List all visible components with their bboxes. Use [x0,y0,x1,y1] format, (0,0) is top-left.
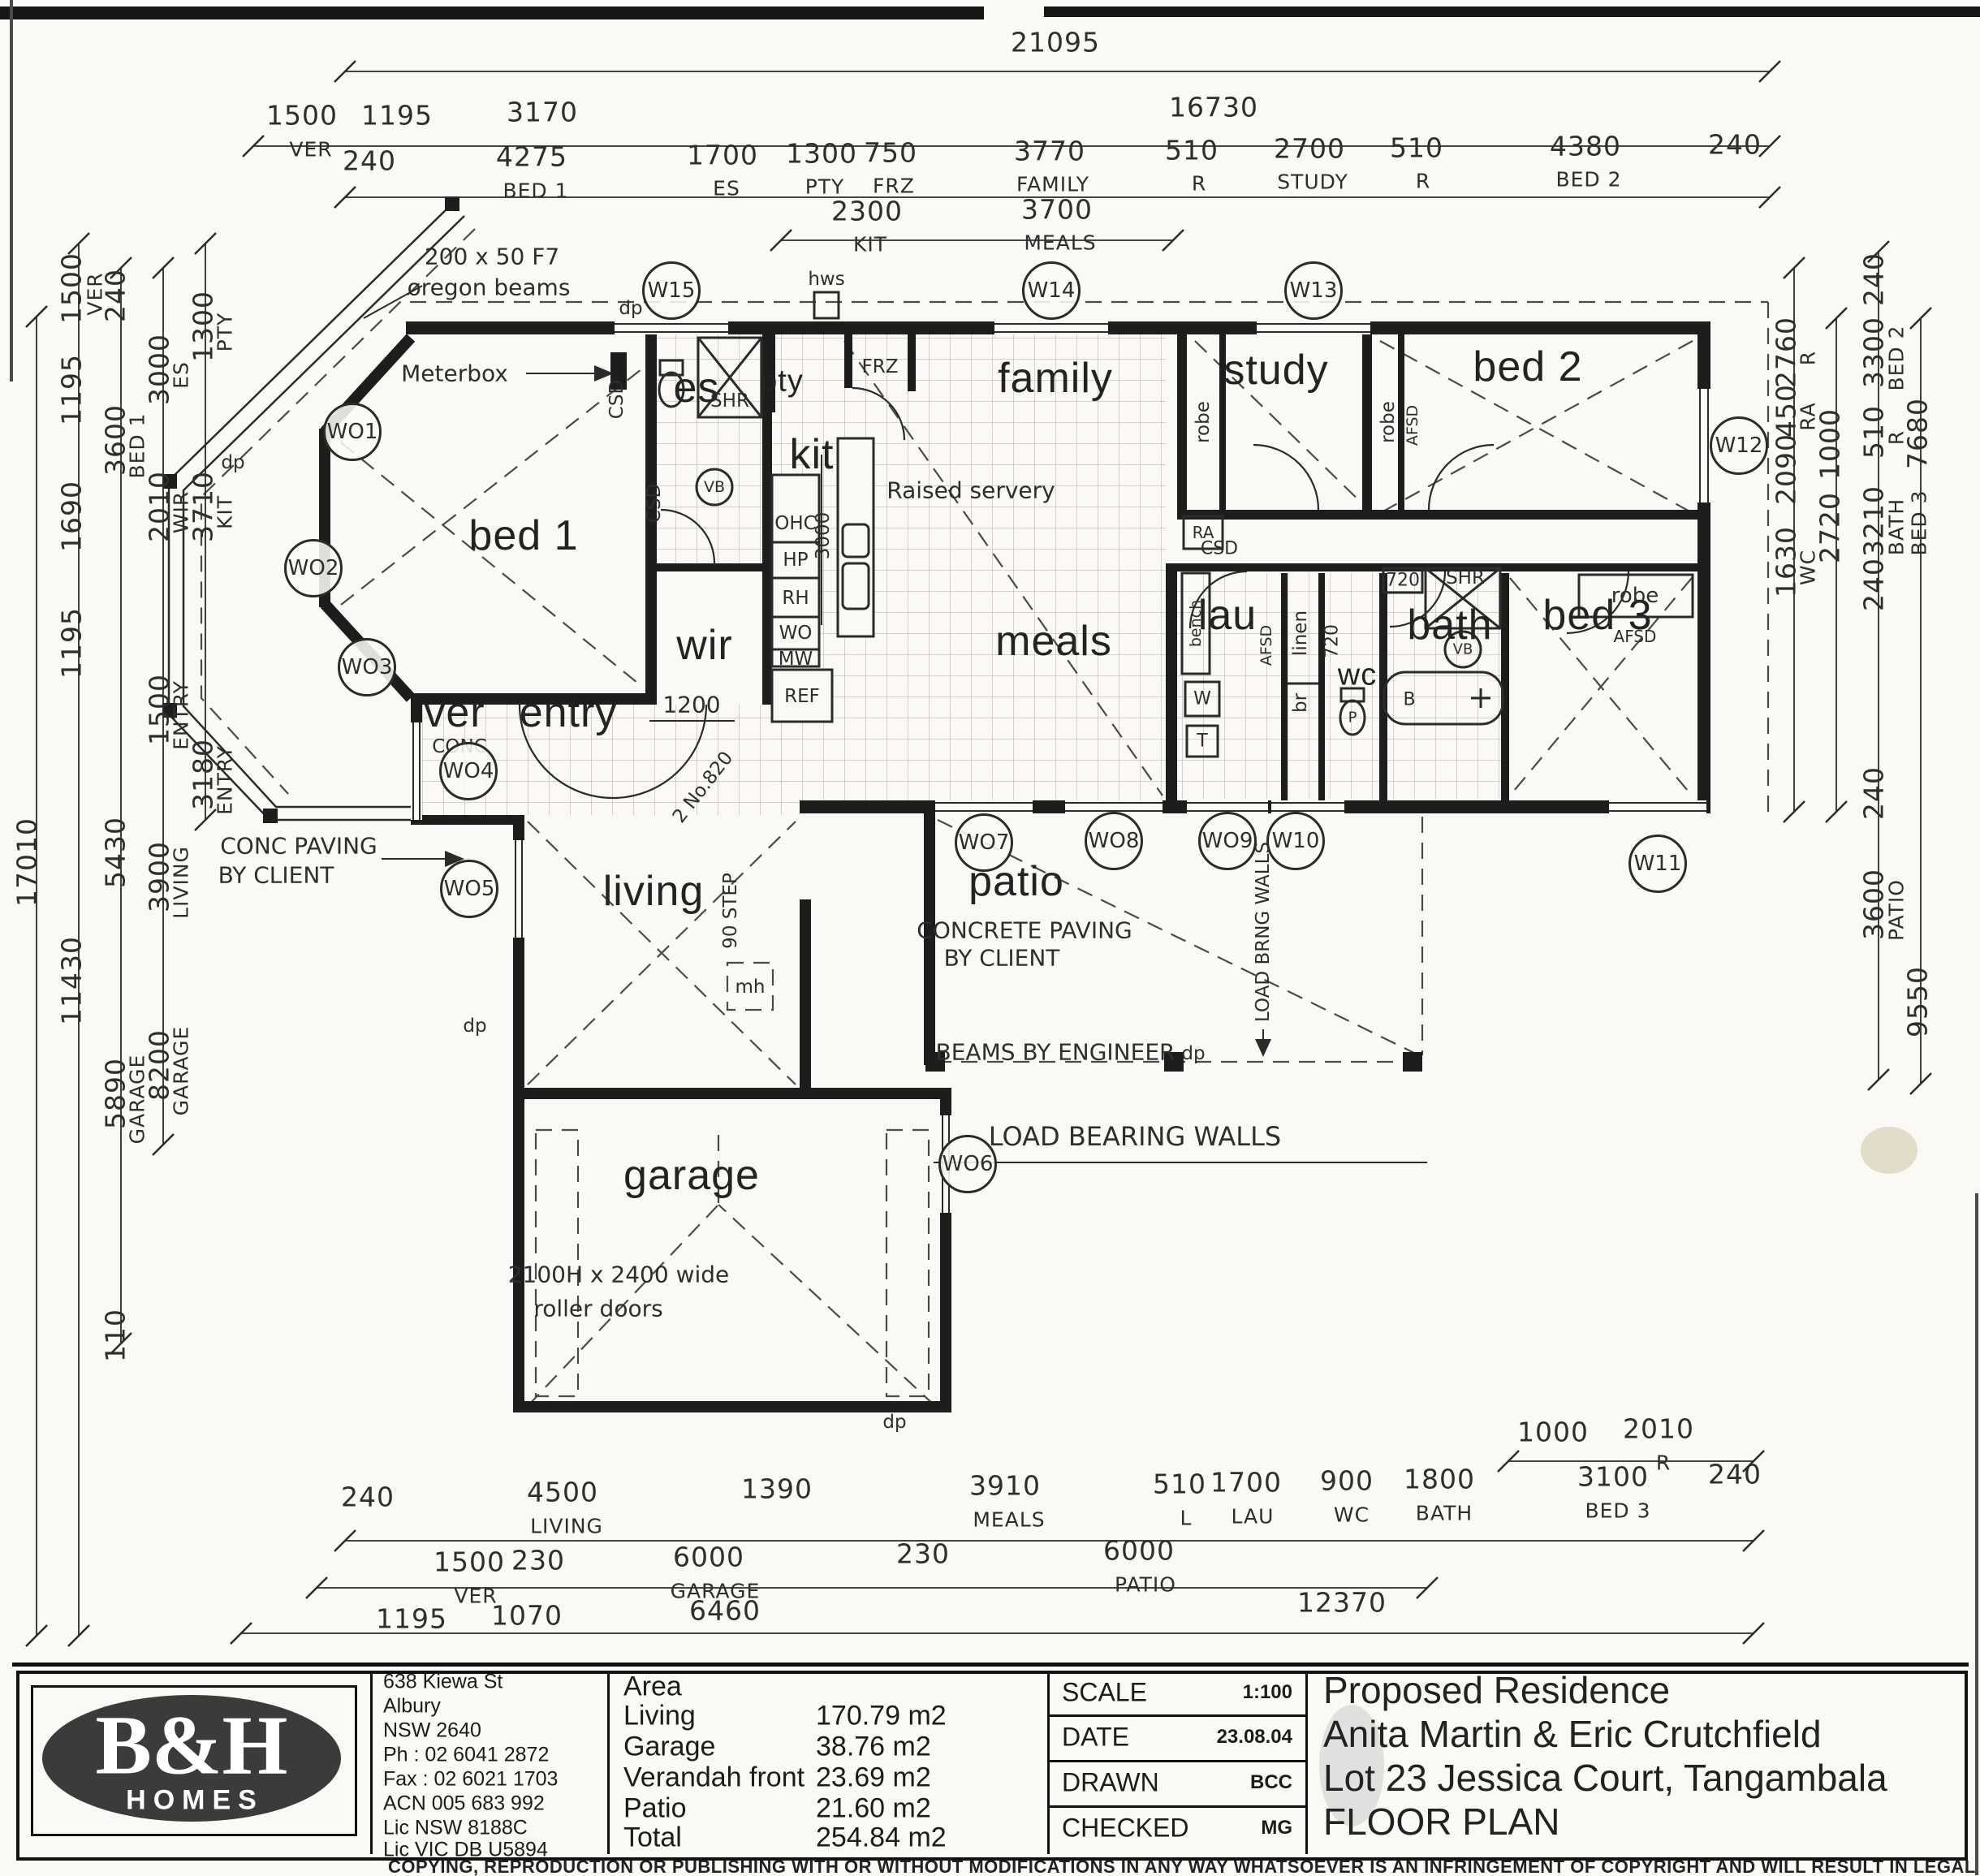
dim-label: FRZ [873,175,915,198]
label-afsd-bed3: AFSD [1614,627,1657,646]
window-marker-w13: W13 [1284,261,1343,320]
address-line: 638 Kiewa St [383,1671,503,1694]
note-step: 90 STEP [720,873,741,949]
note-servery: Raised servery [886,477,1055,504]
area-label: Total [623,1822,682,1854]
note-dp: dp [619,298,642,319]
floor-plan-page: 21095 1500 VER 1195 3170 16730 240 4275 … [0,0,1980,1876]
dim-label: PATIO [1885,879,1909,941]
label-vb: VB [704,478,725,496]
dim: 230 [511,1545,565,1576]
label-shr-bath: SHR [1446,567,1485,589]
label-robe-bed2: robe [1378,401,1399,443]
label-csd: CSD [1201,539,1238,559]
dim: 2720 [1814,492,1846,563]
area-label: Verandah front [623,1762,805,1794]
dim-entry-1200: 1200 [662,692,720,718]
note-conc-paving-2: BY CLIENT [218,862,334,889]
dim: 240 [1708,129,1762,161]
dim-bath-720: 720 [1386,571,1420,591]
frame-bottom-line [12,1663,1969,1667]
label-hp: HP [783,550,808,571]
scan-edge-right [1975,1193,1978,1875]
note-beams-type: oregon beams [408,274,571,301]
dim: 510 [1165,135,1219,166]
title-divider-4 [1305,1671,1308,1854]
dim: 2090 [1771,433,1802,505]
note-beams-size: 200 x 50 F7 [425,244,559,270]
dim-label: MEALS [973,1508,1045,1532]
note-concrete-paving-1: CONCRETE PAVING [917,917,1132,944]
address-line: Albury [383,1695,441,1719]
dim: 240 [1708,1459,1762,1490]
label-robe-bed3: robe [1611,584,1659,608]
dim: 750 [864,137,917,169]
dim-label: KIT [214,495,237,529]
area-heading: Area [623,1671,682,1703]
label-trough: T [1197,731,1207,752]
dim-top-total: 21095 [1011,27,1100,58]
dim-label: LAU [1232,1505,1275,1529]
room-wc: wc [1338,658,1377,693]
room-bath: bath [1407,601,1492,649]
title-divider-3 [1047,1671,1050,1854]
meta-row-line [1047,1714,1305,1717]
area-value: 38.76 m2 [816,1732,931,1763]
dim: 12370 [1297,1587,1387,1619]
room-ver: ver [424,688,485,737]
dim-wc-720: 720 [1322,624,1343,658]
dim: 1800 [1404,1464,1475,1495]
dim-label: BED 3 [1585,1499,1650,1523]
dim: 7680 [1902,398,1934,469]
dim-label: BED 2 [1885,325,1909,390]
note-load-brng: LOAD BRNG WALLS [1253,842,1274,1022]
area-value: 254.84 m2 [816,1822,947,1854]
dim: 510 [1390,132,1443,164]
dim: 11430 [56,936,88,1025]
dim-label: BED 2 [1555,168,1621,192]
scan-band-left [0,6,984,19]
dim: 240 [1858,766,1890,820]
drawn-label: DRAWN [1062,1768,1159,1798]
label-bath-b: B [1403,690,1415,710]
title-divider-1 [370,1671,373,1854]
dim: 17010 [11,817,43,907]
room-lau: lau [1198,591,1257,640]
dim-label: BATH [1885,498,1909,555]
note-dp: dp [463,1016,486,1037]
project-title: Proposed Residence [1323,1668,1670,1712]
dim-label: BED 1 [126,412,149,478]
dim: 2300 [831,196,903,227]
dim: 4380 [1550,131,1621,162]
dim: 3770 [1014,136,1085,167]
label-ohc: OHC [774,513,816,534]
logo-subtext: HOMES [126,1785,264,1817]
label-frz: FRZ [862,356,899,377]
dim: 3700 [1021,194,1093,226]
dim-label: ENTRY [214,745,237,815]
dim: 240 [343,145,396,177]
window-marker-wo9: WO9 [1198,812,1257,870]
dim-label: FAMILY [1016,173,1089,196]
dim: 1700 [1210,1467,1282,1499]
phone-line: Ph : 02 6041 2872 [383,1744,549,1767]
dim: 1195 [376,1603,447,1635]
dim: 110 [100,1309,132,1362]
area-value: 170.79 m2 [816,1701,947,1732]
dim: 240 [341,1481,395,1513]
room-family: family [998,354,1113,403]
dim: 3100 [1577,1461,1649,1493]
dim: 240 [1858,252,1890,306]
label-pan: P [1348,709,1357,727]
room-living: living [603,867,705,916]
note-hws: hws [808,269,844,290]
project-address: Lot 23 Jessica Court, Tangambala [1323,1756,1887,1800]
label-linen: linen [1290,610,1311,656]
hws-box [814,292,839,318]
label-vb-bath: VB [1453,641,1473,658]
window-marker-wo1: WO1 [323,403,382,461]
room-pty: pty [760,364,804,399]
area-label: Garage [623,1732,715,1763]
dim: 1000 [1814,408,1846,480]
dim-label: BATH [1416,1502,1473,1525]
label-rh: RH [782,588,809,609]
copyright-notice: COPYING, REPRODUCTION OR PUBLISHING WITH… [388,1857,1980,1876]
dim: 6460 [689,1595,761,1627]
label-washer: W [1193,689,1211,709]
area-label: Living [623,1701,696,1732]
scan-edge-left [10,0,13,382]
dim-label: LIVING [530,1515,603,1538]
window-marker-wo6: WO6 [938,1135,997,1193]
dim: 1300 [786,138,857,170]
note-beams-engineer: BEAMS BY ENGINEER [936,1039,1175,1066]
drawn-value: BCC [1250,1771,1292,1794]
room-garage: garage [623,1151,760,1200]
dim-label: PATIO [1115,1573,1176,1597]
note-concrete-paving-2: BY CLIENT [944,945,1060,972]
checked-label: CHECKED [1062,1813,1188,1844]
room-wir: wir [676,621,732,670]
dim-label: KIT [853,233,887,257]
meta-row-line [1047,1760,1305,1762]
dim: 510 [1153,1468,1206,1500]
room-meals: meals [995,617,1112,666]
label-afsd-bed2: AFSD [1404,405,1421,446]
dim: 1195 [56,607,88,679]
area-value: 21.60 m2 [816,1793,931,1825]
dim-label: R [1797,351,1820,365]
scale-label: SCALE [1062,1678,1147,1708]
dim: 240 [1858,558,1890,611]
dim-label: R [1416,170,1430,193]
scale-value: 1:100 [1243,1681,1292,1704]
note-conc-paving-1: CONC PAVING [220,833,377,860]
dim: 1500 [434,1546,505,1578]
room-entry: entry [520,688,618,737]
label-afsd-lau: AFSD [1257,625,1275,666]
dim: 1195 [361,100,433,132]
label-shr: SHR [710,390,749,412]
dim: 6000 [1103,1535,1175,1567]
date-value: 23.08.04 [1217,1726,1292,1749]
dim-label: BED 3 [1908,489,1931,555]
room-kit: kit [790,430,835,479]
dim: 900 [1320,1465,1374,1497]
label-csd: CSD [606,380,628,419]
dim-label: ES [170,361,193,389]
drawing-type: FLOOR PLAN [1323,1800,1559,1844]
room-bed2: bed 2 [1473,343,1582,391]
dim: 230 [896,1538,950,1570]
dim: 2700 [1274,133,1345,165]
window-marker-wo3: WO3 [338,638,396,696]
room-study: study [1223,346,1328,395]
note-roller-2: roller doors [533,1296,662,1322]
dim: 1390 [741,1473,813,1505]
dim: 3170 [507,97,578,128]
dim: 4500 [527,1477,598,1508]
note-dp: dp [221,452,244,473]
dim: 16730 [1169,92,1258,123]
dim-label: WC [1334,1503,1370,1527]
window-marker-w10: W10 [1266,812,1325,870]
title-divider-2 [607,1671,610,1854]
dim-label: MEALS [1024,231,1096,255]
roller-door-right [886,1130,929,1396]
area-label: Patio [623,1793,687,1825]
note-dp: dp [1181,1043,1205,1064]
window-marker-w14: W14 [1022,261,1081,320]
dim-label: VER [289,138,332,162]
dim-label: GARAGE [170,1026,193,1116]
note-mh: mh [735,977,766,998]
acn-line: ACN 005 683 992 [383,1792,545,1816]
dim: 5430 [100,817,132,888]
window-marker-wo4: WO4 [439,742,498,800]
window-marker-wo2: WO2 [284,539,343,597]
checked-value: MG [1261,1817,1292,1839]
note-meterbox: Meterbox [401,360,508,387]
licence-nsw: Lic NSW 8188C [383,1817,528,1840]
dim-label: BED 1 [503,179,568,203]
dim-label: R [1192,172,1206,196]
window-marker-w15: W15 [642,261,701,320]
logo-text: B&H [96,1697,288,1794]
dim: 1000 [1517,1417,1589,1448]
dim-label: LIVING [170,846,193,919]
note-roller-1: 2100H x 2400 wide [508,1261,730,1288]
dim: 1500 [266,100,338,132]
window-marker-wo7: WO7 [955,813,1013,872]
dim: 1690 [56,481,88,552]
window-marker-wo5: WO5 [440,860,498,918]
label-wo: WO [779,623,813,644]
dim: 6000 [673,1542,744,1573]
dim: 3910 [969,1470,1041,1502]
label-ref: REF [784,686,820,707]
dim: 240 [100,269,132,322]
tiled-floor-areas [422,334,1501,815]
dim: 9550 [1902,966,1934,1037]
dim-label: STUDY [1277,170,1348,194]
note-load-bearing: LOAD BEARING WALLS [989,1121,1281,1152]
dim-label: PTY [214,313,237,352]
meta-row-line [1047,1805,1305,1808]
dim-label: ES [713,177,740,201]
room-bed1: bed 1 [468,511,578,560]
project-clients: Anita Martin & Eric Crutchfield [1323,1712,1822,1756]
window-marker-w12: W12 [1710,416,1768,475]
dim: 1070 [491,1600,563,1632]
dim: 2010 [1623,1413,1694,1445]
window-marker-wo8: WO8 [1085,812,1143,870]
dim-label: R [1656,1451,1671,1475]
label-bench: bench [1187,600,1205,647]
dim-label: L [1180,1507,1193,1530]
label-br: br [1290,693,1311,713]
window-marker-w11: W11 [1628,834,1687,893]
note-dp: dp [882,1412,906,1433]
dim: 1195 [56,354,88,425]
label-csd: CSD [644,484,665,523]
label-robe-study: robe [1193,401,1214,443]
scan-band-right [1044,6,1980,17]
fax-line: Fax : 02 6021 1703 [383,1768,558,1792]
area-value: 23.69 m2 [816,1762,931,1794]
label-mw: MW [779,649,813,670]
address-line: NSW 2640 [383,1719,481,1743]
date-label: DATE [1062,1723,1129,1753]
dim: 1700 [687,140,758,171]
dim: 4275 [496,141,567,173]
